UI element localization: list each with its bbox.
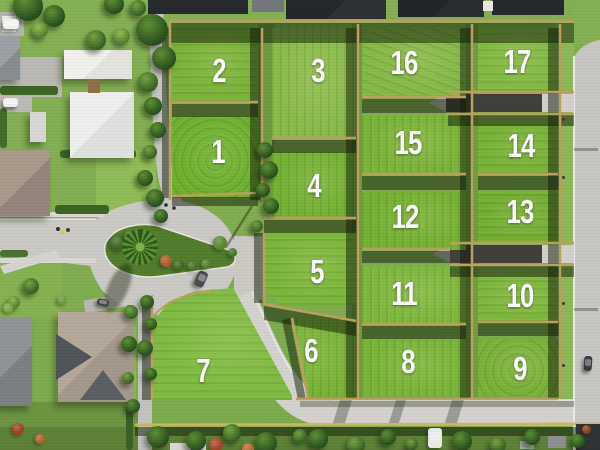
- lot-label-4: 4: [307, 169, 321, 202]
- lot-label-15: 15: [394, 126, 421, 159]
- lot-label-9: 9: [513, 352, 527, 385]
- lot-label-8: 8: [401, 345, 415, 378]
- lot-label-14: 14: [507, 129, 534, 162]
- lot-label-2: 2: [212, 54, 226, 87]
- lot-label-11: 11: [391, 277, 417, 310]
- lot-label-10: 10: [506, 279, 533, 312]
- lot-label-13: 13: [506, 195, 533, 228]
- aerial-subdivision-photo: 1234567891011121314151617: [0, 0, 600, 450]
- lot-label-3: 3: [311, 54, 325, 87]
- lot-label-6: 6: [304, 334, 318, 367]
- lot-label-17: 17: [503, 45, 530, 78]
- lot-label-12: 12: [391, 200, 418, 233]
- lot-label-16: 16: [390, 46, 417, 79]
- lot-label-1: 1: [211, 135, 225, 168]
- lot-label-5: 5: [310, 255, 324, 288]
- lot-label-7: 7: [196, 354, 210, 387]
- lot-labels-layer: 1234567891011121314151617: [0, 0, 600, 450]
